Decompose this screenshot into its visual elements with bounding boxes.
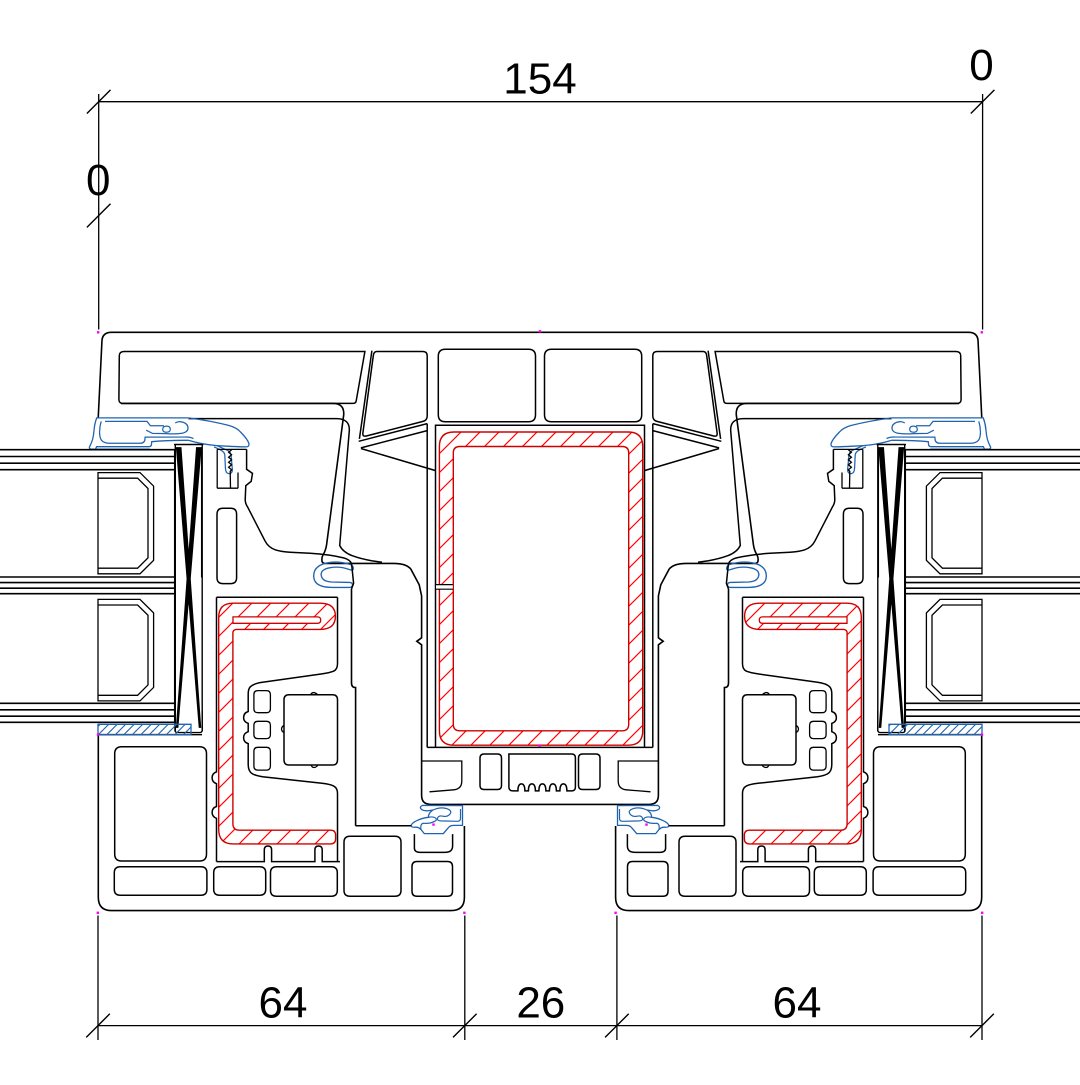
svg-text:64: 64	[773, 979, 822, 1028]
svg-text:26: 26	[516, 979, 565, 1028]
svg-text:0: 0	[969, 41, 993, 90]
svg-text:0: 0	[86, 156, 110, 205]
svg-text:64: 64	[259, 979, 308, 1028]
svg-text:154: 154	[503, 55, 576, 104]
